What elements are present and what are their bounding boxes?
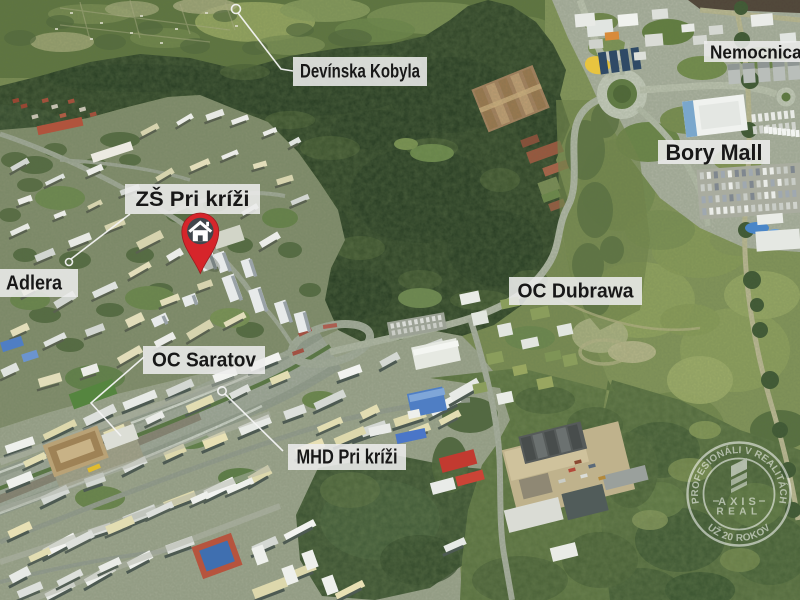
svg-text:Devínska Kobyla: Devínska Kobyla	[300, 62, 420, 83]
svg-text:MHD Pri kríži: MHD Pri kríži	[297, 447, 398, 469]
svg-text:Adlera: Adlera	[6, 273, 63, 295]
svg-text:OC Dubrawa: OC Dubrawa	[518, 281, 635, 303]
svg-text:ZŠ Pri kríži: ZŠ Pri kríži	[136, 187, 250, 211]
svg-text:Nemocnica Bor: Nemocnica Bor	[710, 42, 800, 63]
svg-text:OC Saratov: OC Saratov	[152, 350, 257, 372]
svg-text:Bory Mall: Bory Mall	[666, 140, 763, 165]
svg-text:REAL: REAL	[716, 507, 761, 518]
